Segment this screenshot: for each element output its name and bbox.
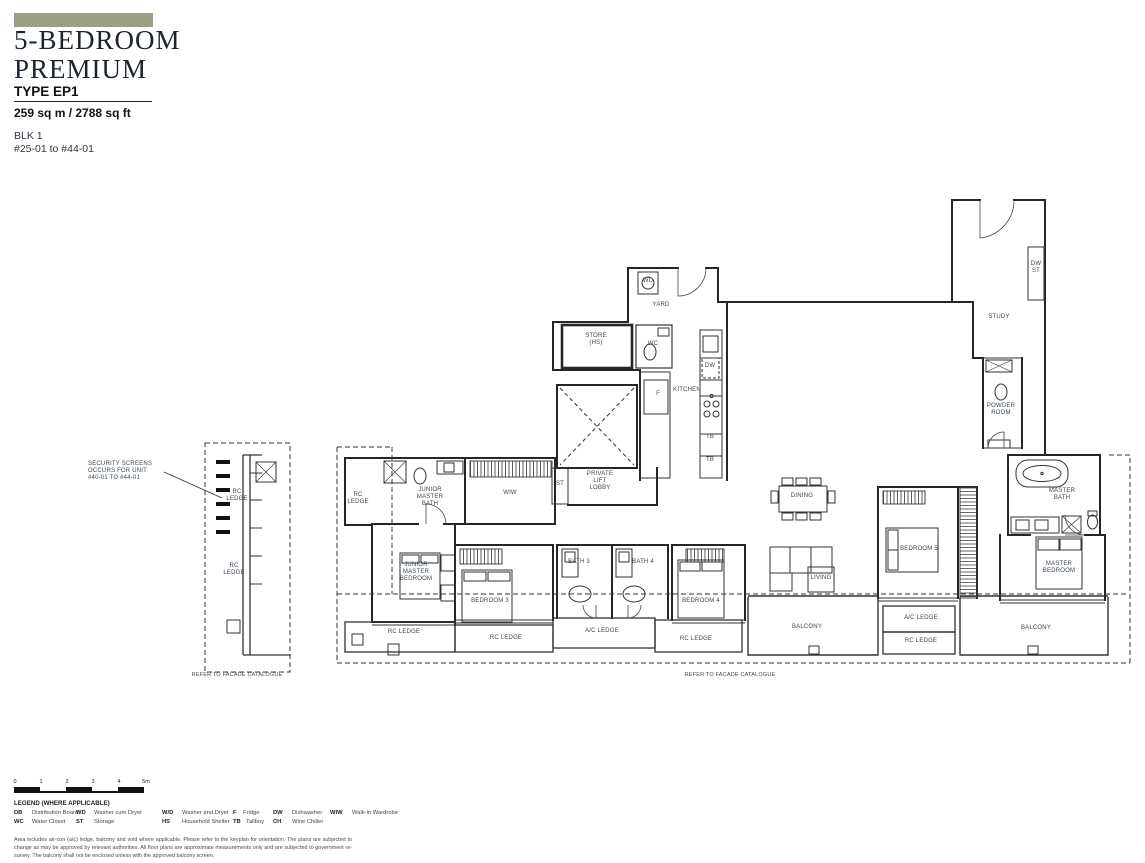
junior-master-bath-fixtures bbox=[384, 461, 463, 484]
window-lines bbox=[372, 598, 1105, 625]
wc-fixtures bbox=[644, 328, 669, 360]
dw-st-cabinet bbox=[1028, 247, 1044, 300]
washer-dryer-icon bbox=[638, 272, 658, 294]
floor-plan-drawing bbox=[0, 0, 1145, 863]
rc-ledge-bottom-left-outline bbox=[345, 622, 455, 652]
walls bbox=[345, 200, 1105, 625]
legend-item-dw: DW bbox=[273, 810, 283, 816]
wardrobe-hatches bbox=[460, 461, 977, 598]
bath4-door-arc bbox=[628, 605, 641, 618]
coffee-table-icon bbox=[808, 567, 834, 592]
master-bath-door-arc bbox=[1065, 515, 1085, 535]
facade-strip bbox=[227, 455, 290, 655]
sofa-icon bbox=[770, 547, 832, 591]
scale-tick-4: 4 bbox=[117, 779, 120, 785]
scale-tick-1: 1 bbox=[39, 779, 42, 785]
door-arcs bbox=[426, 200, 1085, 618]
study-door-arc bbox=[980, 200, 1014, 238]
disclaimer-text: Area includes air-con (a/c) ledge, balco… bbox=[14, 836, 352, 860]
master-bath-fixtures bbox=[1011, 460, 1098, 533]
fridge-box bbox=[644, 380, 668, 414]
scale-bar-segments bbox=[14, 787, 144, 793]
legend-item-wc: WC bbox=[14, 819, 24, 825]
scale-tick-5: 5m bbox=[142, 779, 150, 785]
annotation-leader-line bbox=[164, 472, 222, 498]
legend-title: LEGEND (WHERE APPLICABLE) bbox=[14, 800, 110, 807]
bedroom3-wardrobe-hatch bbox=[460, 549, 502, 564]
bedroom5-wardrobe-hatch bbox=[883, 491, 925, 504]
legend-item-f: F bbox=[233, 810, 237, 816]
legend-item-wd: WD bbox=[76, 810, 86, 816]
legend-item-st: ST bbox=[76, 819, 83, 825]
scale-tick-0: 0 bbox=[13, 779, 16, 785]
legend-item-tb: TB bbox=[233, 819, 241, 825]
security-screen-bars bbox=[216, 460, 230, 534]
bed3-icon bbox=[462, 570, 512, 622]
dishwasher-box bbox=[702, 358, 719, 378]
legend-item-wiw: WIW bbox=[330, 810, 343, 816]
master-wiw-hatch bbox=[960, 487, 977, 598]
scale-tick-2: 2 bbox=[65, 779, 68, 785]
dining-table-icon bbox=[771, 478, 835, 520]
yard-door-arc bbox=[678, 268, 706, 296]
wiw-hatch bbox=[470, 461, 552, 477]
bedroom4-wardrobe-hatch bbox=[686, 549, 724, 562]
legend-item-hs: HS bbox=[162, 819, 170, 825]
legend-item-w-d: W/D bbox=[162, 810, 173, 816]
scale-tick-3: 3 bbox=[91, 779, 94, 785]
bed4-icon bbox=[678, 560, 724, 618]
legend-item-db: DB bbox=[14, 810, 22, 816]
bath3-door-arc bbox=[583, 605, 596, 618]
powder-room-fixtures bbox=[986, 360, 1012, 448]
scale-bar: 0 1 2 3 4 5m bbox=[14, 779, 146, 795]
kitchen-sink bbox=[703, 336, 718, 352]
junior-bath-door-arc bbox=[426, 504, 446, 524]
lift-shaft-x bbox=[560, 388, 634, 465]
master-bed-icon bbox=[1036, 537, 1082, 589]
floorplan-page: 5-BEDROOMPREMIUM TYPE EP1 259 sq m / 278… bbox=[0, 0, 1145, 863]
stove-icon bbox=[704, 394, 719, 417]
bed5-icon bbox=[886, 528, 938, 572]
legend-item-ch: CH bbox=[273, 819, 281, 825]
